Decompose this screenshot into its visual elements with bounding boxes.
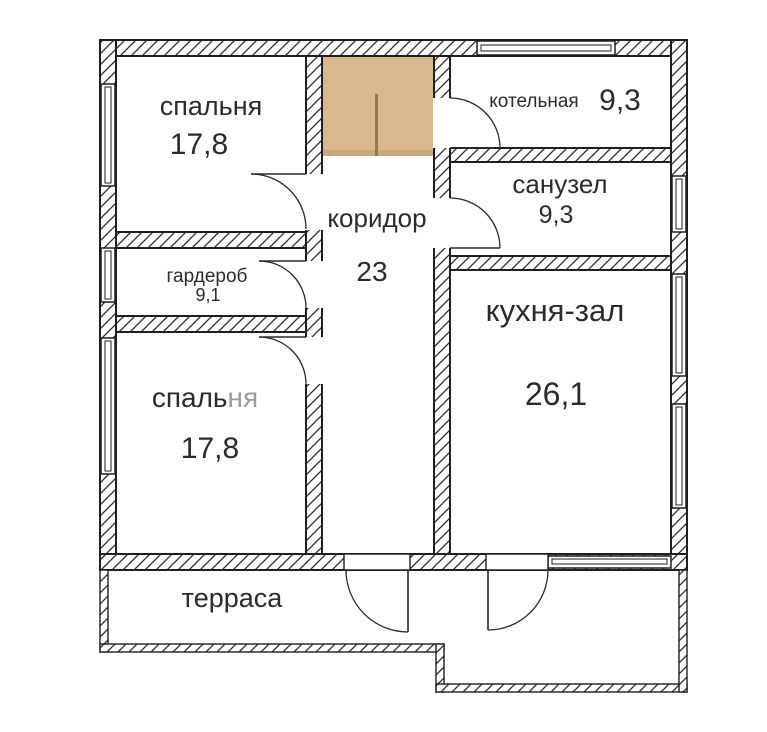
door-corridor-terrace-opening <box>344 554 410 570</box>
door-bedroom1-swing <box>251 174 306 229</box>
window-bathroom-frame <box>676 179 682 229</box>
label-bathroom-area: 9,3 <box>539 201 574 229</box>
window-bedroom1-frame <box>105 87 111 183</box>
label-boiler-name: котельная <box>489 91 578 112</box>
label-bedroom2-name-faded: ня <box>228 382 259 413</box>
door-corridor-terrace <box>344 554 410 632</box>
wall-boiler-bathroom <box>450 148 671 162</box>
label-terrace-name: терраса <box>182 583 284 613</box>
door-bedroom2-swing <box>259 337 306 384</box>
wall-bathroom-kitchen <box>450 256 671 270</box>
window-bedroom2-frame <box>105 341 111 471</box>
terrace-wall-bottom-right <box>436 684 687 692</box>
door-bedroom2 <box>259 337 323 384</box>
terrace-wall-bottom-left <box>100 644 444 652</box>
terrace-wall-right <box>679 570 687 692</box>
window-kitchen-upper-frame <box>676 277 682 373</box>
label-kitchen-name: кухня-зал <box>486 293 625 328</box>
window-kitchen-terrace-frame <box>552 559 667 564</box>
label-wardrobe-name: гардероб <box>167 266 248 287</box>
door-wardrobe-opening <box>305 261 323 308</box>
terrace-wall-left <box>100 570 108 652</box>
door-kitchen-terrace-opening <box>486 554 548 570</box>
window-kitchen-lower-frame <box>676 407 682 505</box>
door-bathroom-opening <box>433 198 451 248</box>
entry-door-divider <box>375 94 378 156</box>
label-bathroom-name: санузел <box>512 169 607 199</box>
label-boiler-area: 9,3 <box>599 84 641 117</box>
wall-bedroom1-wardrobe <box>116 232 306 248</box>
label-kitchen-area: 26,1 <box>525 376 587 412</box>
label-bedroom2-area: 17,8 <box>181 432 239 465</box>
label-wardrobe-area: 9,1 <box>195 285 220 305</box>
doors <box>251 98 548 632</box>
window-wardrobe-frame <box>105 251 111 299</box>
label-bedroom1-area: 17,8 <box>170 128 228 161</box>
door-kitchen-terrace-swing <box>488 570 548 630</box>
door-bathroom-swing <box>450 198 500 248</box>
label-bedroom2-name-dark: спаль <box>152 382 228 413</box>
door-bathroom <box>433 198 500 248</box>
floor-plan-canvas: спальня 17,8 котельная 9,3 санузел 9,3 к… <box>0 0 767 732</box>
window-boiler-frame <box>481 45 611 51</box>
label-corridor-area: 23 <box>356 256 387 287</box>
door-boiler-opening <box>433 98 451 148</box>
door-wardrobe-swing <box>259 261 306 308</box>
entry-vestibule <box>322 56 434 156</box>
label-corridor-name: коридор <box>327 203 426 233</box>
door-kitchen-terrace <box>486 554 548 630</box>
room-labels: спальня 17,8 котельная 9,3 санузел 9,3 к… <box>152 84 641 613</box>
label-bedroom2-name: спальня <box>152 382 258 413</box>
door-wardrobe <box>259 261 323 308</box>
door-corridor-terrace-swing <box>346 570 408 632</box>
door-bedroom1 <box>251 174 323 230</box>
label-bedroom1-name: спальня <box>160 91 263 121</box>
wall-wardrobe-bedroom2 <box>116 316 306 332</box>
door-bedroom1-opening <box>305 174 323 230</box>
door-bedroom2-opening <box>305 337 323 384</box>
